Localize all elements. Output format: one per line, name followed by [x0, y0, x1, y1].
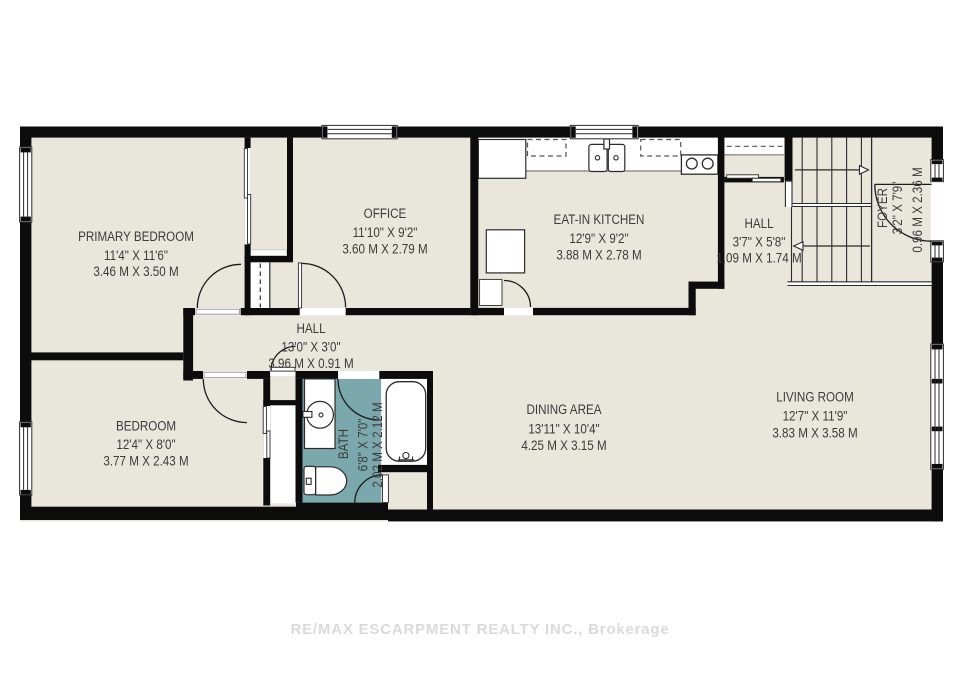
svg-text:13'11" X 10'4": 13'11" X 10'4" — [528, 420, 600, 436]
svg-text:3.96 M X 0.91 M: 3.96 M X 0.91 M — [268, 355, 353, 371]
svg-text:HALL: HALL — [744, 215, 773, 231]
svg-text:3.88 M X 2.78 M: 3.88 M X 2.78 M — [556, 246, 641, 262]
svg-text:3.83 M X 3.58 M: 3.83 M X 3.58 M — [772, 424, 857, 440]
svg-text:0.96 M X 2.36 M: 0.96 M X 2.36 M — [909, 167, 925, 252]
svg-text:PRIMARY BEDROOM: PRIMARY BEDROOM — [78, 228, 194, 244]
svg-text:11'10" X 9'2": 11'10" X 9'2" — [353, 224, 418, 240]
svg-text:RE/MAX ESCARPMENT REALTY INC.,: RE/MAX ESCARPMENT REALTY INC., Brokerage — [291, 621, 670, 638]
svg-text:1.09 M X 1.74 M: 1.09 M X 1.74 M — [716, 249, 801, 265]
svg-text:3'7" X 5'8": 3'7" X 5'8" — [733, 233, 786, 249]
svg-text:12'4" X 8'0": 12'4" X 8'0" — [116, 436, 176, 452]
svg-text:LIVING ROOM: LIVING ROOM — [776, 388, 854, 404]
svg-text:12'7" X 11'9": 12'7" X 11'9" — [783, 407, 848, 423]
svg-text:13'0" X 3'0": 13'0" X 3'0" — [281, 338, 341, 354]
svg-text:4.25 M X 3.15 M: 4.25 M X 3.15 M — [521, 437, 606, 453]
svg-text:BATH: BATH — [335, 429, 351, 459]
svg-text:3'2" X 7'9": 3'2" X 7'9" — [889, 181, 905, 234]
svg-text:OFFICE: OFFICE — [364, 205, 407, 221]
svg-text:EAT-IN KITCHEN: EAT-IN KITCHEN — [554, 211, 645, 227]
svg-text:2.02 M X 2.12 M: 2.02 M X 2.12 M — [369, 402, 385, 487]
svg-text:12'9" X 9'2": 12'9" X 9'2" — [569, 230, 629, 246]
svg-text:FOYER: FOYER — [874, 188, 890, 228]
svg-text:BEDROOM: BEDROOM — [116, 417, 176, 433]
svg-text:DINING AREA: DINING AREA — [527, 401, 602, 417]
svg-text:3.46 M X 3.50 M: 3.46 M X 3.50 M — [93, 263, 178, 279]
svg-text:HALL: HALL — [296, 320, 325, 336]
svg-text:11'4" X 11'6": 11'4" X 11'6" — [104, 247, 168, 263]
svg-text:3.77 M X 2.43 M: 3.77 M X 2.43 M — [103, 452, 188, 468]
svg-text:3.60 M X 2.79 M: 3.60 M X 2.79 M — [342, 240, 427, 256]
